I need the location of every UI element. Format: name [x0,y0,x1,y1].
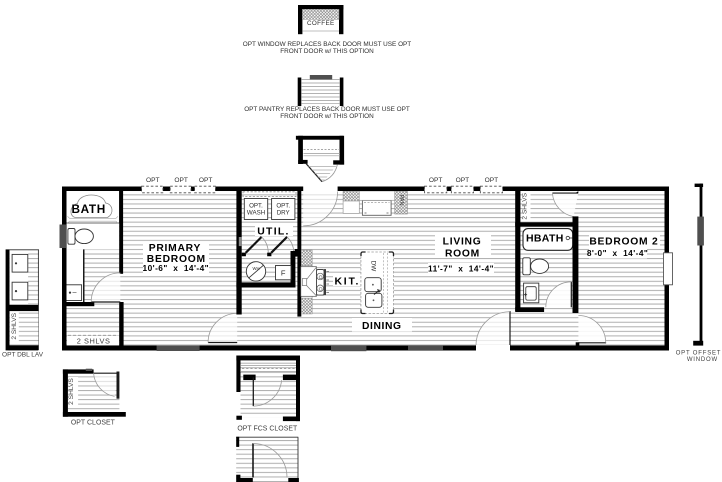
svg-text:OPT WINDOW REPLACES BACK DOOR: OPT WINDOW REPLACES BACK DOOR MUST USE O… [243,41,412,48]
svg-text:F: F [281,269,286,278]
svg-text:OPT.: OPT. [276,203,290,210]
svg-text:2 SHLVS: 2 SHLVS [68,378,75,405]
svg-text:DW: DW [370,261,377,273]
svg-text:OPT FCS CLOSET: OPT FCS CLOSET [237,426,298,433]
svg-text:BATH: BATH [72,202,106,216]
svg-text:PRIMARY: PRIMARY [149,243,201,254]
svg-text:OPT: OPT [485,177,499,184]
svg-text:WH: WH [253,266,260,271]
svg-text:OPT: OPT [146,177,160,184]
svg-text:11'-7" x 14'-4": 11'-7" x 14'-4" [428,264,494,274]
svg-text:DRY: DRY [277,210,290,217]
svg-text:OPT: OPT [199,177,213,184]
svg-text:2 SHLVS: 2 SHLVS [522,192,529,219]
svg-text:OPT CLOSET: OPT CLOSET [71,419,116,426]
svg-text:OPT.: OPT. [249,203,263,210]
svg-text:OPT: OPT [456,177,470,184]
svg-text:KIT.: KIT. [334,276,360,287]
svg-text:UTIL.: UTIL. [257,226,289,237]
svg-text:OPT: OPT [174,177,188,184]
svg-text:HBATH: HBATH [526,232,564,244]
svg-text:2 SHLVS: 2 SHLVS [11,312,18,339]
svg-text:10'-6" x 14'-4": 10'-6" x 14'-4" [143,263,210,273]
svg-text:COFFEE: COFFEE [307,20,335,27]
svg-text:WASH: WASH [247,210,265,217]
svg-text:LIVING: LIVING [443,236,482,247]
svg-text:FRONT DOOR w/ THIS OPTION: FRONT DOOR w/ THIS OPTION [280,48,374,55]
svg-text:WINDOW: WINDOW [687,357,718,363]
svg-text:PAN: PAN [398,195,404,206]
svg-text:2 SHLVS: 2 SHLVS [77,336,111,345]
svg-text:OPT: OPT [429,177,443,184]
svg-text:OPT DBL LAV: OPT DBL LAV [2,351,44,358]
svg-text:OPT OFFSET: OPT OFFSET [676,351,722,357]
svg-text:8'-0" x 14'-4": 8'-0" x 14'-4" [587,248,648,258]
svg-text:ROOM: ROOM [445,248,480,259]
svg-text:FRONT DOOR w/ THIS OPTION: FRONT DOOR w/ THIS OPTION [280,113,374,120]
svg-text:BEDROOM 2: BEDROOM 2 [589,237,658,248]
svg-text:DINING: DINING [362,321,402,332]
